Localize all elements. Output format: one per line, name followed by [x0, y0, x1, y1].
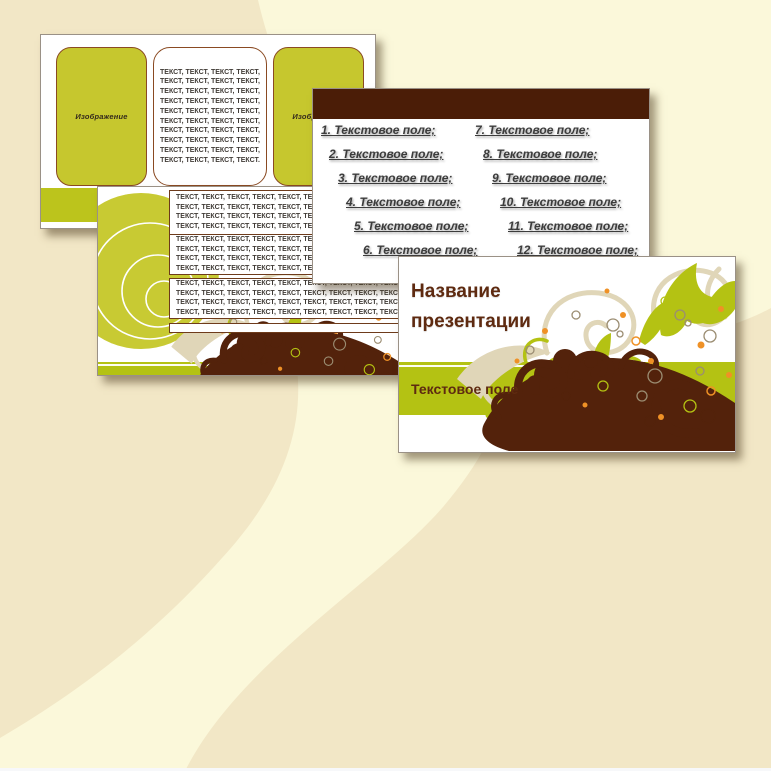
- list-item: 1. Текстовое поле;: [321, 123, 489, 147]
- image-placeholder-label: Изображение: [75, 112, 127, 121]
- presentation-subtitle: Текстовое поле: [411, 381, 518, 397]
- title-slide-thumbnail: Название презентации Текстовое поле: [398, 256, 736, 453]
- text-line: ТЕКСТ, ТЕКСТ, ТЕКСТ, ТЕКСТ,: [154, 146, 266, 156]
- text-placeholder-lines: ТЕКСТ, ТЕКСТ, ТЕКСТ, ТЕКСТ,ТЕКСТ, ТЕКСТ,…: [154, 68, 266, 166]
- text-row-box: ТЕКСТ, ТЕКСТ, ТЕКСТ, ТЕКСТ, ТЕКСТ, ТЕКСТ…: [169, 278, 424, 319]
- text-line: ТЕКСТ, ТЕКСТ, ТЕКСТ, ТЕКСТ,: [154, 126, 266, 136]
- list-item: 7. Текстовое поле;: [475, 123, 643, 147]
- text-line: ТЕКСТ, ТЕКСТ, ТЕКСТ, ТЕКСТ,: [154, 68, 266, 78]
- list-column-left: 1. Текстовое поле;2. Текстовое поле;3. Т…: [321, 123, 489, 267]
- text-placeholder-box: ТЕКСТ, ТЕКСТ, ТЕКСТ, ТЕКСТ,ТЕКСТ, ТЕКСТ,…: [153, 47, 267, 186]
- text-line: ТЕКСТ, ТЕКСТ, ТЕКСТ, ТЕКСТ, ТЕКСТ, ТЕКСТ…: [170, 289, 423, 299]
- text-line: ТЕКСТ, ТЕКСТ, ТЕКСТ, ТЕКСТ, ТЕКСТ, ТЕКСТ…: [170, 298, 423, 308]
- list-item: 9. Текстовое поле;: [492, 171, 643, 195]
- numbered-list-slide-thumbnail: 1. Текстовое поле;2. Текстовое поле;3. Т…: [312, 88, 650, 284]
- text-line: ТЕКСТ, ТЕКСТ, ТЕКСТ, ТЕКСТ, ТЕКСТ, ТЕКСТ…: [170, 308, 423, 318]
- brown-header-band: [313, 89, 649, 119]
- image-placeholder-left: Изображение: [56, 47, 147, 186]
- text-line: ТЕКСТ, ТЕКСТ, ТЕКСТ, ТЕКСТ,: [154, 87, 266, 97]
- text-line: ТЕКСТ, ТЕКСТ, ТЕКСТ, ТЕКСТ,: [154, 117, 266, 127]
- list-item: 11. Текстовое поле;: [508, 219, 643, 243]
- list-item: 2. Текстовое поле;: [329, 147, 489, 171]
- list-item: 4. Текстовое поле;: [346, 195, 489, 219]
- template-preview-canvas: { "title_slide": { "title": "Название пр…: [0, 0, 771, 771]
- text-line: ТЕКСТ, ТЕКСТ, ТЕКСТ, ТЕКСТ.: [154, 156, 266, 166]
- empty-row-box: [169, 323, 424, 333]
- list-item: 8. Текстовое поле;: [483, 147, 643, 171]
- text-line: ТЕКСТ, ТЕКСТ, ТЕКСТ, ТЕКСТ,: [154, 77, 266, 87]
- text-line: ТЕКСТ, ТЕКСТ, ТЕКСТ, ТЕКСТ,: [154, 97, 266, 107]
- list-item: 10. Текстовое поле;: [500, 195, 643, 219]
- text-line: ТЕКСТ, ТЕКСТ, ТЕКСТ, ТЕКСТ,: [154, 136, 266, 146]
- presentation-title: Название презентации: [411, 277, 581, 337]
- list-item: 3. Текстовое поле;: [338, 171, 489, 195]
- text-line: ТЕКСТ, ТЕКСТ, ТЕКСТ, ТЕКСТ,: [154, 107, 266, 117]
- list-column-right: 7. Текстовое поле;8. Текстовое поле;9. Т…: [475, 123, 643, 267]
- list-item: 5. Текстовое поле;: [354, 219, 489, 243]
